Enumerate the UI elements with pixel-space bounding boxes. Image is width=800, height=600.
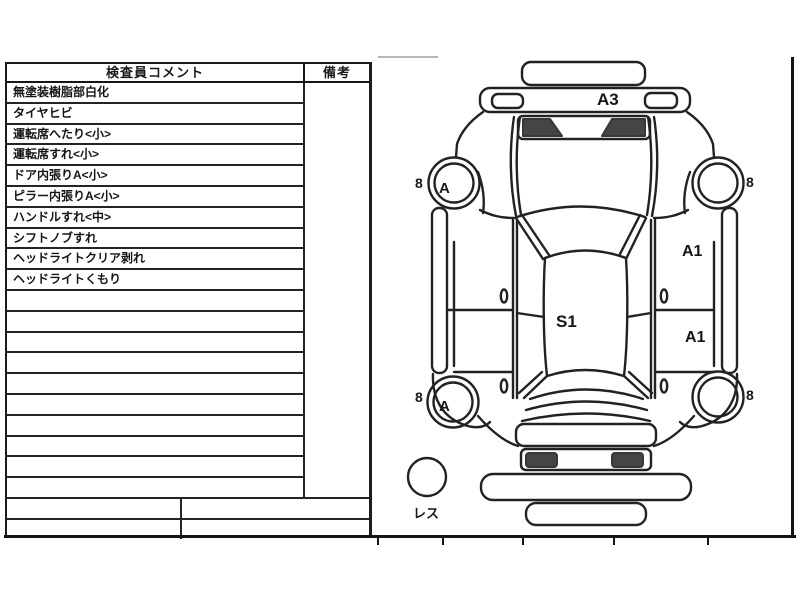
side-sill-left <box>432 208 447 373</box>
rear-window-arc-3 <box>522 414 650 422</box>
rear-quarter-right-joint <box>654 416 694 446</box>
wheel-front-left-size-label: 8 <box>415 175 423 191</box>
front-quarter-left-joint <box>480 210 514 218</box>
table-row: ヘッドライトくもり <box>7 270 303 291</box>
roof-front-edge <box>545 251 626 259</box>
wheel-arch-front-left <box>429 158 480 209</box>
rear-window-arc-1 <box>530 390 643 400</box>
cowl-dark-mark-right <box>602 119 645 136</box>
wheel-rear-right <box>699 378 738 417</box>
front-fender-left <box>456 112 483 157</box>
table-row: タイヤヒビ <box>7 104 303 125</box>
headlight-left <box>492 94 523 108</box>
tail-light-right <box>612 453 643 467</box>
front-quarter-right <box>684 172 690 213</box>
table-row: シフトノブすれ <box>7 229 303 250</box>
table-row: ヘッドライトクリア剥れ <box>7 249 303 270</box>
table-row: 運転席すれ<小> <box>7 145 303 166</box>
rear-quarter-left-joint <box>478 416 518 446</box>
door-split-left-roofside <box>517 313 544 317</box>
table-row <box>7 478 303 499</box>
header-comments: 検査員コメント <box>7 64 303 81</box>
wheel-rear-left-mark: A <box>439 398 450 415</box>
table-row <box>7 353 303 374</box>
trunk-lid <box>516 424 656 446</box>
next-table-divider-tick <box>377 538 379 545</box>
wheel-arch-rear-right <box>693 372 744 423</box>
door-handle-front-right <box>661 290 667 303</box>
wheel-front-right-size-label: 8 <box>746 174 754 190</box>
roof-grade-label: S1 <box>556 312 577 331</box>
front-panel-grade-label: A3 <box>597 90 619 109</box>
wheel-rear-right-size-label: 8 <box>746 387 754 403</box>
rear-window-arc-2 <box>526 402 647 411</box>
table-body: 無塗装樹脂部白化タイヤヒビ運転席へたり<小>運転席すれ<小>ドア内張りA<小>ピ… <box>7 83 369 499</box>
door-handle-front-left <box>501 290 507 303</box>
table-row: 無塗装樹脂部白化 <box>7 83 303 104</box>
cowl-dark-mark-left <box>523 119 562 136</box>
table-row <box>7 437 303 458</box>
table-row <box>7 291 303 312</box>
wheel-front-left-mark: A <box>439 180 450 197</box>
door-handle-rear-left <box>501 380 507 393</box>
door-handle-rear-right <box>661 380 667 393</box>
table-row <box>7 395 303 416</box>
table-row <box>7 416 303 437</box>
door-rear-right-grade-label: A1 <box>685 329 706 346</box>
table-row <box>7 333 303 354</box>
wheel-rear-left-size-label: 8 <box>415 389 423 405</box>
front-quarter-right-joint <box>654 210 688 218</box>
hood-edge-right-inner <box>647 117 651 215</box>
spare-tire-circle <box>408 458 446 496</box>
table-footer <box>7 499 369 539</box>
windshield-top-edge <box>517 207 645 218</box>
front-fender-right <box>687 112 714 157</box>
wheel-front-right <box>699 164 738 203</box>
table-row <box>7 457 303 478</box>
hood-edge-right <box>652 117 657 216</box>
table-header-row: 検査員コメント 備考 <box>7 64 369 83</box>
table-row: 運転席へたり<小> <box>7 125 303 146</box>
table-row: ピラー内張りA<小> <box>7 187 303 208</box>
table-row: ハンドルすれ<中> <box>7 208 303 229</box>
table-row <box>7 374 303 395</box>
table-footer-row <box>7 499 369 520</box>
hood-edge-left <box>511 117 516 216</box>
hood-edge-left-inner <box>517 117 521 215</box>
header-remarks: 備考 <box>303 64 369 81</box>
table-row <box>7 312 303 333</box>
tail-light-left <box>526 453 557 467</box>
footer-cell-right <box>182 499 369 518</box>
footer-cell-left <box>7 499 182 518</box>
rear-under-panel <box>526 503 646 525</box>
car-damage-diagram: A3 S1 A1 A1 <box>385 40 800 545</box>
rear-bumper <box>481 474 691 500</box>
remarks-cell <box>303 83 369 499</box>
comment-rows: 無塗装樹脂部白化タイヤヒビ運転席へたり<小>運転席すれ<小>ドア内張りA<小>ピ… <box>7 83 303 499</box>
inspector-comment-table: 検査員コメント 備考 無塗装樹脂部白化タイヤヒビ運転席へたり<小>運転席すれ<小… <box>5 62 372 537</box>
roof-rear-edge <box>547 370 624 376</box>
spare-less-label: レス <box>413 506 439 521</box>
door-split-right-roofside <box>627 313 651 317</box>
wheel-arch-front-right <box>693 158 744 209</box>
door-front-right-grade-label: A1 <box>682 243 703 260</box>
front-bumper <box>522 62 645 85</box>
headlight-right <box>645 93 677 108</box>
side-sill-right <box>722 208 737 373</box>
table-row: ドア内張りA<小> <box>7 166 303 187</box>
